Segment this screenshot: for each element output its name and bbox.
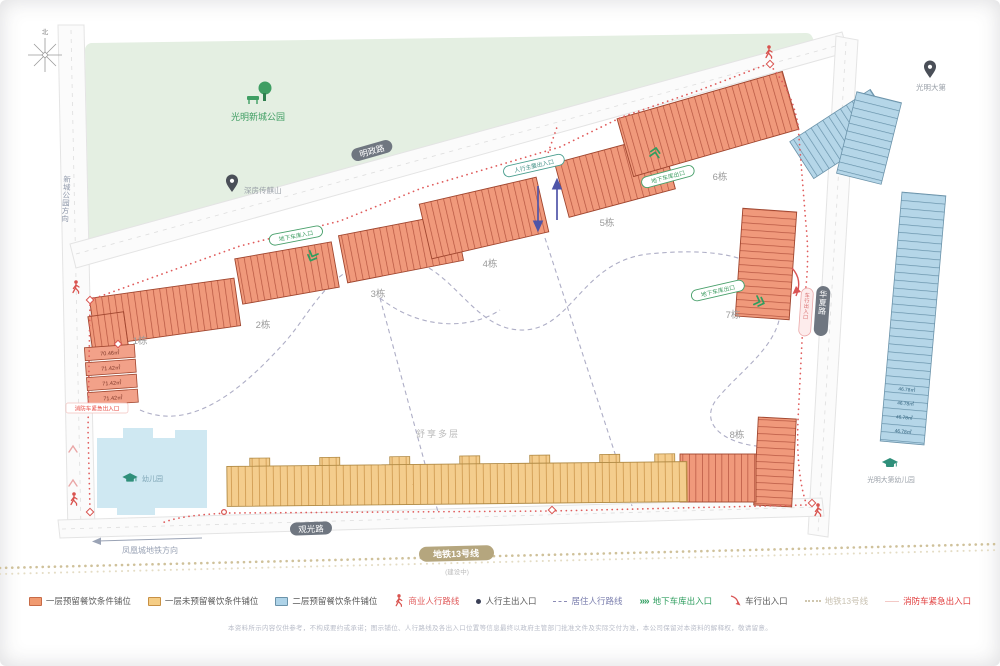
legend-item-second-floor: 二层预留餐饮条件铺位 (275, 595, 377, 607)
legend-item-vehicle-entrance: 车行出入口 (729, 595, 788, 607)
svg-text:深房传麒山: 深房传麒山 (244, 185, 282, 195)
building-label-3: 3栋 (371, 288, 386, 300)
metro-label: 地铁13号线 (433, 547, 479, 559)
shops-building-2 (235, 242, 339, 304)
legend-item-fire-exit: 消防车紧急出入口 (885, 595, 971, 607)
compass-icon (28, 38, 62, 72)
svg-text:凤凰城地铁方向: 凤凰城地铁方向 (122, 545, 178, 555)
compass-north-label: 北 (42, 28, 49, 36)
legend-item-garage-entrance: »»地下车库出入口 (639, 595, 712, 607)
shops-second-floor-column: 46.78㎡ 46.78㎡ 46.78㎡ 46.78㎡ (880, 192, 946, 445)
legend-item-main-ped-entrance: 人行主出入口 (476, 595, 536, 607)
disclaimer-text: 本资料所示内容仅供参考，不构成要约或承诺；图示铺位、人行路线及各出入口位置等信息… (100, 622, 900, 632)
legend-item-reserved-dining: 一层预留餐饮条件铺位 (29, 595, 131, 607)
park-label: 光明新城公园 (231, 111, 285, 122)
walking-person-icon (394, 594, 404, 608)
center-note: 舒享多层 (416, 428, 460, 439)
building-label-7: 7栋 (726, 309, 741, 321)
legend-item-metro: 地铁13号线 (805, 595, 868, 607)
shops-bottom-strip (227, 454, 687, 507)
legend-item-unreserved-dining: 一层未预留餐饮条件铺位 (148, 595, 259, 607)
poi-east: 光明大第 (916, 61, 946, 93)
legend: 一层预留餐饮条件铺位 一层未预留餐饮条件铺位 二层预留餐饮条件铺位 商业人行路线… (0, 594, 1000, 608)
building-label-5: 5栋 (600, 217, 615, 229)
metro-status: (建设中) (445, 567, 469, 576)
svg-text:观光路: 观光路 (298, 524, 324, 535)
svg-text:消防车紧急出入口: 消防车紧急出入口 (75, 405, 120, 413)
metro-line-icon (805, 600, 821, 602)
vehicle-entrance: 车行出入口 (792, 268, 814, 336)
building-label-4: 4栋 (483, 258, 498, 270)
building-label-6: 6栋 (713, 171, 728, 183)
svg-text:光明大第: 光明大第 (916, 82, 946, 92)
site-plan-canvas: 光明新城公园 明政路 观光路 华夏路 地铁13号线 (建设中) (0, 0, 1000, 666)
legend-item-residential-route: 居住人行路线 (553, 595, 622, 607)
dot-icon (476, 599, 481, 604)
orange-swatch-icon (29, 597, 42, 606)
main-pedestrian-arrows (534, 179, 562, 231)
blue-swatch-icon (275, 597, 288, 606)
kindergarten-site-label: 幼儿园 (142, 474, 163, 483)
site-plan-map: 光明新城公园 明政路 观光路 华夏路 地铁13号线 (建设中) (0, 0, 1000, 592)
svg-text:光明大第幼儿园: 光明大第幼儿园 (867, 475, 915, 484)
chevrons-icon: »» (639, 596, 648, 607)
kindergarten-building: 幼儿园 (97, 428, 207, 515)
fire-line-icon (885, 601, 899, 602)
shops-building-1-annex: 70.46㎡ 71.42㎡ 71.42㎡ 71.42㎡ (84, 344, 138, 405)
legend-item-commercial-route: 商业人行路线 (394, 594, 459, 608)
capsule-main-entrance: 人行主要出入口 (502, 153, 565, 178)
direction-southwest: 凤凰城地铁方向 (92, 538, 202, 556)
kindergarten-east: 光明大第幼儿园 (867, 458, 915, 484)
building-label-1: 1栋 (133, 335, 148, 347)
building-label-8: 8栋 (730, 429, 745, 441)
curved-arrow-icon (729, 595, 741, 607)
dash-icon (553, 601, 567, 602)
shops-building-7 (735, 208, 796, 320)
fire-exit-label: 消防车紧急出入口 (66, 403, 128, 413)
shops-building-4 (419, 177, 549, 259)
yellow-swatch-icon (148, 597, 161, 606)
road-label-south: 观光路 (290, 521, 332, 535)
building-label-2: 2栋 (256, 319, 271, 331)
capsule-garage-in: 地下车库入口 (268, 225, 323, 246)
